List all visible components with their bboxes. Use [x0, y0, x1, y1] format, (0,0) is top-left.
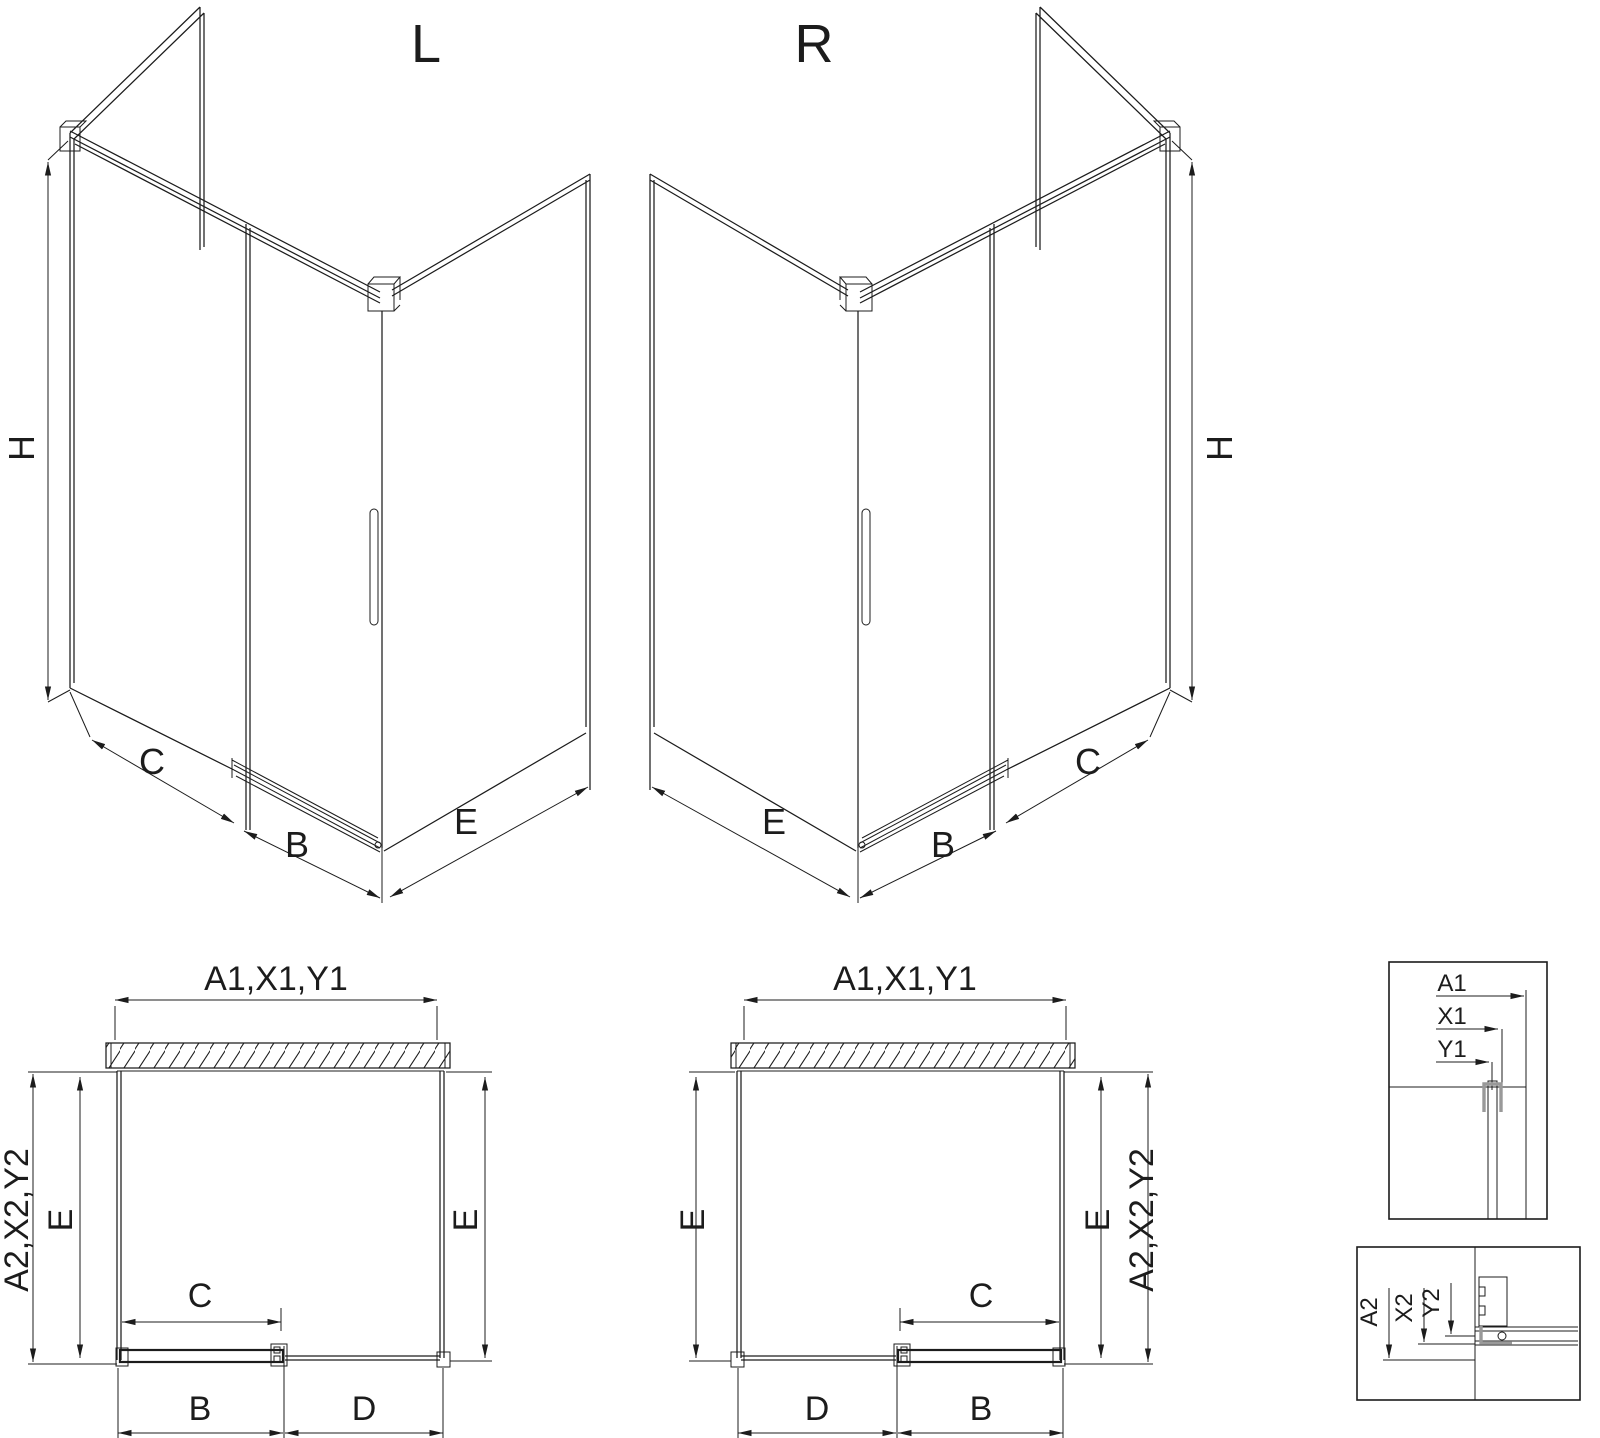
plan-right-dim-depth-right: E: [1079, 1209, 1117, 1232]
plan-right-dim-door: C: [969, 1277, 994, 1315]
detail-top-dim-a1: A1: [1437, 970, 1466, 997]
plan-right-dim-outer: A2,X2,Y2: [1123, 1148, 1161, 1292]
detail-wall-profile: [1389, 962, 1547, 1219]
iso-right-dim-side: E: [762, 801, 786, 842]
detail-top-dim-y1: Y1: [1437, 1036, 1466, 1063]
plan-right-dim-d: D: [805, 1390, 830, 1428]
plan-left-dim-depth-left: E: [42, 1209, 80, 1232]
plan-left-dim-depth-right: E: [447, 1209, 485, 1232]
plan-left-dim-d: D: [352, 1390, 377, 1428]
iso-right-dim-height: H: [1199, 435, 1240, 461]
iso-right-view: [650, 7, 1192, 903]
plan-right-wall-hatch: [731, 1043, 1075, 1068]
iso-left-dim-side: E: [454, 801, 478, 842]
detail-bottom-dim-y2: Y2: [1418, 1288, 1445, 1317]
detail-glass-section: [1488, 1081, 1497, 1219]
iso-left-dim-fixed: C: [139, 741, 165, 782]
technical-drawing-page: L H C B E R H C B E A1,X1,Y1 A2,X2,Y2 E …: [0, 0, 1600, 1438]
plan-right-dim-b: B: [970, 1390, 993, 1428]
plan-left-wall-hatch: [106, 1043, 450, 1068]
drawing-canvas: L H C B E R H C B E A1,X1,Y1 A2,X2,Y2 E …: [0, 0, 1600, 1438]
iso-right-title: R: [795, 14, 834, 74]
iso-right-dim-door: B: [931, 824, 955, 865]
plan-left-dim-top: A1,X1,Y1: [204, 960, 348, 998]
iso-left-dim-height: H: [1, 435, 42, 461]
detail-top-dim-x1: X1: [1437, 1003, 1466, 1030]
iso-right-dim-fixed: C: [1075, 741, 1101, 782]
iso-left-view: [48, 7, 590, 903]
plan-left-dim-b: B: [189, 1390, 212, 1428]
detail-floor-profile-clamp: [1481, 1326, 1512, 1343]
detail-bottom-dim-x2: X2: [1391, 1293, 1418, 1322]
iso-left-title: L: [411, 14, 441, 74]
plan-left-dim-outer: A2,X2,Y2: [0, 1148, 36, 1292]
detail-rail-upright: [1479, 1277, 1507, 1326]
plan-right-dim-top: A1,X1,Y1: [833, 960, 977, 998]
plan-right-dim-depth-left: E: [674, 1209, 712, 1232]
iso-left-dim-door: B: [285, 824, 309, 865]
detail-bottom-dim-a2: A2: [1356, 1297, 1383, 1326]
plan-left-dim-door: C: [188, 1277, 213, 1315]
detail-screw: [1498, 1332, 1506, 1340]
